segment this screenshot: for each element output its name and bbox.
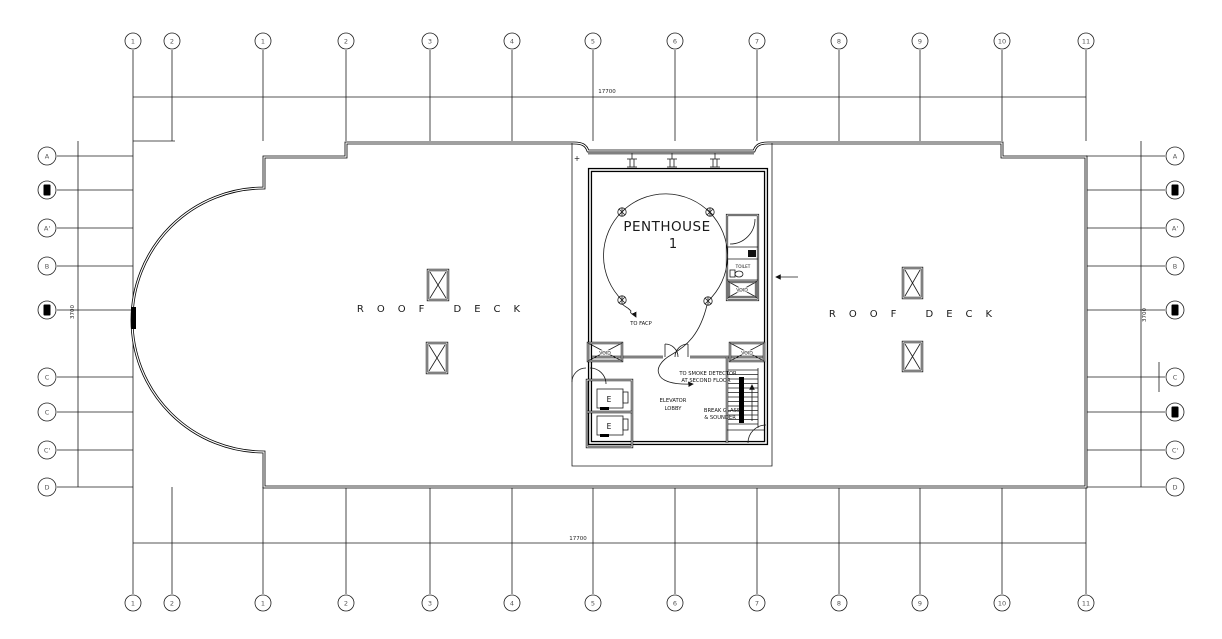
grid-bubble-label: 3 xyxy=(428,599,432,607)
grid-bubble-label: 1 xyxy=(261,599,265,607)
to-facp-note: TO FACP xyxy=(629,321,652,327)
grid-bubble-label: B xyxy=(45,262,49,270)
penthouse-number: 1 xyxy=(669,237,677,252)
grid-bubble-label: 2 xyxy=(344,37,348,45)
door-arc xyxy=(730,219,755,244)
grid-bubble-label: 5 xyxy=(591,37,595,45)
toilet-fixture xyxy=(730,270,735,277)
grid-bubble-label: 8 xyxy=(837,37,841,45)
roof-deck-columns xyxy=(427,268,922,373)
break-glass-note-line2: & SOUNDER xyxy=(704,415,736,421)
to-facp-wire xyxy=(622,304,636,317)
stair-rail xyxy=(739,377,744,423)
grid-bubble-label: 1 xyxy=(131,37,135,45)
roof-deck-left-label: ROOF DECK xyxy=(357,304,533,315)
dimension-top: 17700 xyxy=(598,89,616,95)
grid-bubble-label: B xyxy=(1173,262,1177,270)
penthouse-label: PENTHOUSE xyxy=(623,219,710,235)
elevator-lobby-label-line2: LOBBY xyxy=(665,406,683,412)
void-label: VOID xyxy=(736,288,748,294)
filled-grid-marker xyxy=(44,305,51,316)
filled-grid-marker xyxy=(1172,305,1179,316)
grid-bubble-label: C' xyxy=(1172,446,1179,454)
grid-bubble-label: A xyxy=(45,152,50,160)
grid-bubble-label: 2 xyxy=(170,37,174,45)
grid-bubble-label: A xyxy=(1173,152,1178,160)
sink-fixture xyxy=(748,250,756,257)
grid-bubble-label: 4 xyxy=(510,37,514,45)
column-grid-bottom: 121234567891011 xyxy=(125,487,1094,611)
grid-bubble-label: A' xyxy=(44,224,50,232)
grid-bubble-label: C xyxy=(45,373,50,381)
to-smoke-note-line1: TO SMOKE DETECTOR xyxy=(678,371,737,377)
grid-bubble-label: A' xyxy=(1172,224,1178,232)
dimension-bottom: 17700 xyxy=(569,536,587,542)
arc-wall-tick xyxy=(131,307,136,329)
row-grid-left: AA'BCCC'D xyxy=(38,147,133,496)
grid-bubble-label: 6 xyxy=(673,37,677,45)
grid-bubble-label: 4 xyxy=(510,599,514,607)
dimension-left: 3700 xyxy=(70,305,76,319)
grid-bubble-label: 5 xyxy=(591,599,595,607)
void-label: VOID xyxy=(741,351,753,357)
filled-grid-marker xyxy=(1172,407,1179,418)
grid-bubble-label: 10 xyxy=(998,37,1006,45)
grid-bubble-label: D xyxy=(1172,483,1177,491)
elevator-lobby-label-line1: ELEVATOR xyxy=(660,398,687,404)
grid-bubble-label: 7 xyxy=(755,599,759,607)
grid-bubble-label: 2 xyxy=(170,599,174,607)
grid-bubble-label: 9 xyxy=(918,37,922,45)
filled-grid-marker xyxy=(44,185,51,196)
plus-marker: + xyxy=(574,154,580,163)
grid-bubble-label: C xyxy=(45,408,50,416)
grid-bubble-label: 6 xyxy=(673,599,677,607)
elevator-car-label: E xyxy=(607,422,612,431)
column-grid-top: 121234567891011 xyxy=(125,33,1094,141)
grid-bubble-label: D xyxy=(44,483,49,491)
grid-bubble-label: 1 xyxy=(261,37,265,45)
grid-bubble-label: C' xyxy=(44,446,51,454)
roof-deck-plan-drawing: 17700 17700 3700 3700 121234567891011 12… xyxy=(0,0,1222,639)
toilet-label: TOILET xyxy=(735,264,751,269)
annotations: PENTHOUSE 1 ROOF DECK ROOF DECK TO FACP … xyxy=(357,219,1005,421)
floor-plan-canvas: 17700 17700 3700 3700 121234567891011 12… xyxy=(0,0,1222,639)
grid-bubble-label: 10 xyxy=(998,599,1006,607)
roof-beam-symbols xyxy=(627,153,720,167)
grid-bubble-label: 3 xyxy=(428,37,432,45)
grid-bubble-label: 2 xyxy=(344,599,348,607)
grid-bubble-label: 11 xyxy=(1082,599,1090,607)
grid-bubble-label: 8 xyxy=(837,599,841,607)
elevator-car-label: E xyxy=(607,395,612,404)
filled-grid-marker xyxy=(1172,185,1179,196)
to-smoke-note-line2: AT SECOND FLOOR xyxy=(681,378,731,384)
grid-bubble-label: 11 xyxy=(1082,37,1090,45)
grid-bubble-label: 7 xyxy=(755,37,759,45)
break-glass-note-line1: BREAK GLASS xyxy=(704,408,740,414)
row-grid-right: AA'BCC'D xyxy=(1086,147,1184,496)
roof-deck-right-label: ROOF DECK xyxy=(829,309,1005,320)
void-label: VOID xyxy=(599,351,611,357)
grid-bubble-label: 1 xyxy=(131,599,135,607)
elevator-shaft: E E xyxy=(587,380,632,447)
grid-bubble-label: 9 xyxy=(918,599,922,607)
void-box-column: VOID xyxy=(729,282,756,297)
toilet-rooms: TOILET VOID xyxy=(727,215,758,300)
grid-bubble-label: C xyxy=(1173,373,1178,381)
